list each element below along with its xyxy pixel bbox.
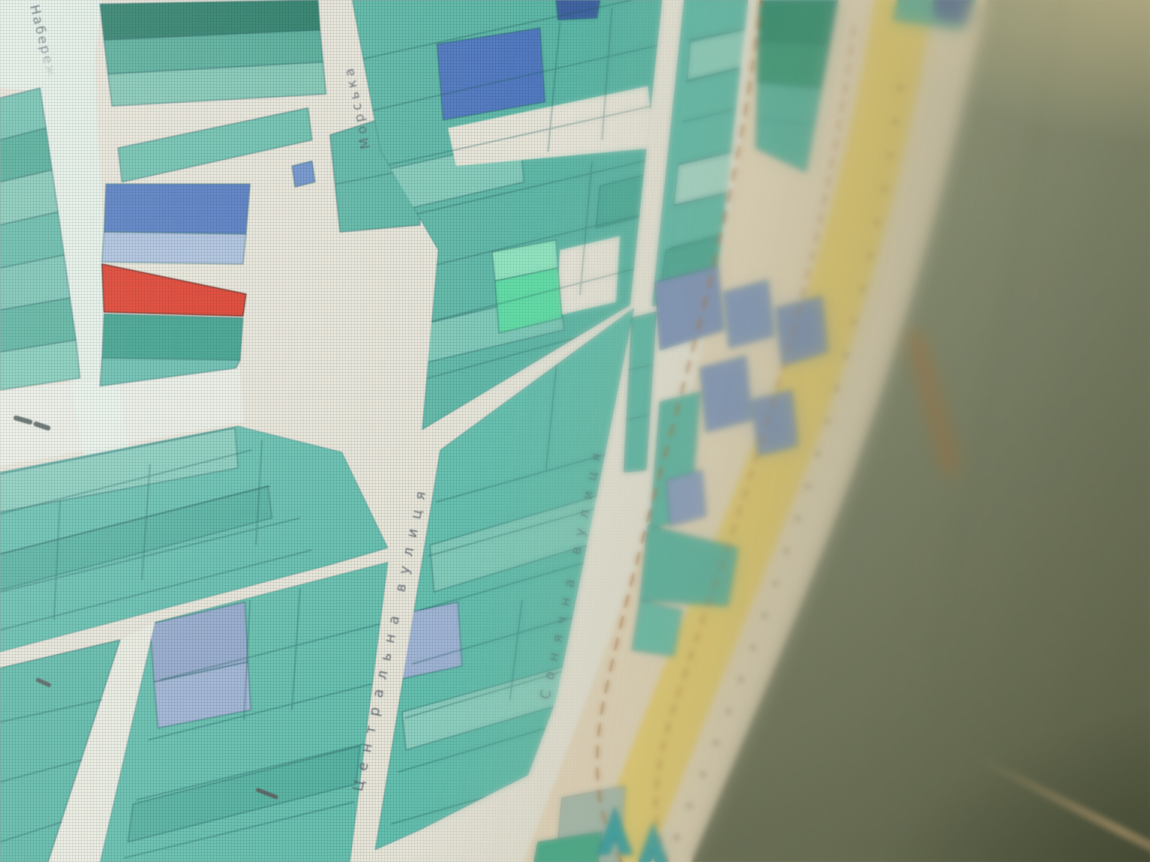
screen-photo: Набережна Морська Центральна вулиця Соня…: [0, 0, 1150, 862]
small-blue-parcel: [292, 161, 315, 187]
parcel-slate[interactable]: [666, 470, 706, 526]
parcel-navy[interactable]: [556, 0, 600, 20]
cadastral-map-view[interactable]: Набережна Морська Центральна вулиця Соня…: [0, 0, 1150, 862]
parcel-slate[interactable]: [700, 356, 752, 432]
map-canvas[interactable]: Набережна Морська Центральна вулиця Соня…: [0, 0, 1150, 862]
parcel-blue[interactable]: [104, 184, 250, 234]
parcel-slate[interactable]: [724, 280, 774, 348]
